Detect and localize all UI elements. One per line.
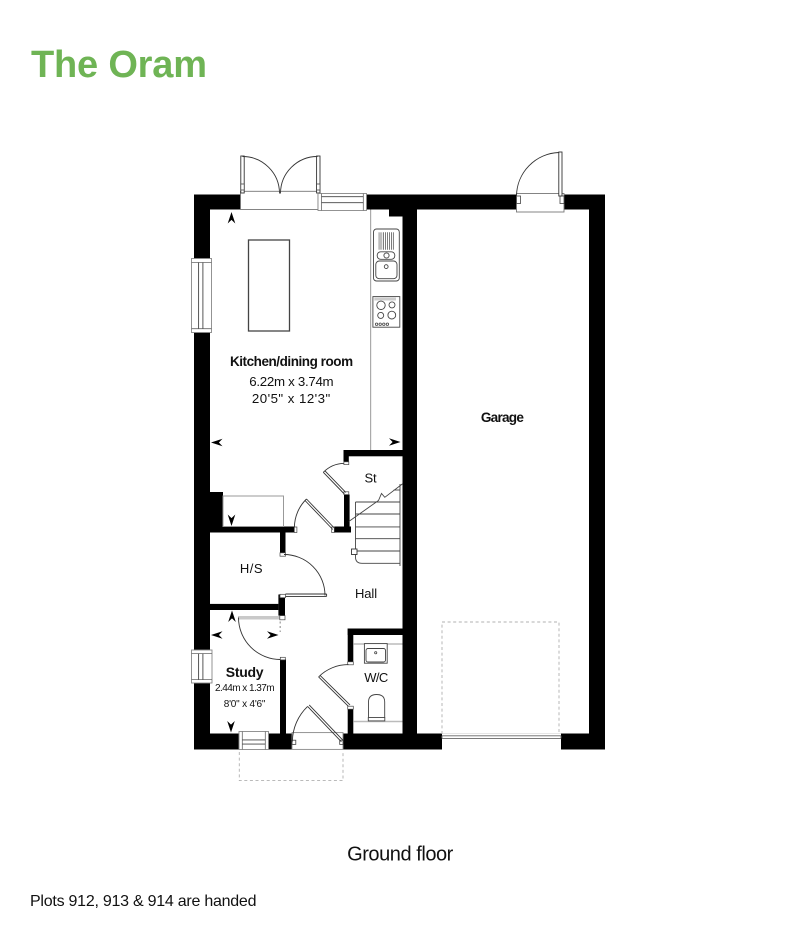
svg-text:Ground floor: Ground floor [347, 844, 454, 866]
svg-text:The Oram: The Oram [31, 44, 207, 86]
svg-text:Study: Study [226, 664, 264, 680]
svg-text:20'5" x 12'3": 20'5" x 12'3" [252, 391, 331, 406]
svg-text:Plots 912, 913 & 914 are hande: Plots 912, 913 & 914 are handed [30, 893, 256, 910]
svg-text:Kitchen/dining room: Kitchen/dining room [230, 354, 353, 369]
svg-text:Garage: Garage [481, 410, 525, 425]
svg-text:W/C: W/C [364, 670, 388, 685]
svg-text:2.44m x 1.37m: 2.44m x 1.37m [215, 683, 274, 694]
svg-text:St: St [364, 471, 377, 486]
svg-text:Hall: Hall [355, 586, 377, 601]
svg-text:6.22m x 3.74m: 6.22m x 3.74m [249, 374, 333, 389]
svg-text:8'0" x 4'6": 8'0" x 4'6" [224, 699, 266, 710]
svg-text:H/S: H/S [240, 561, 263, 576]
